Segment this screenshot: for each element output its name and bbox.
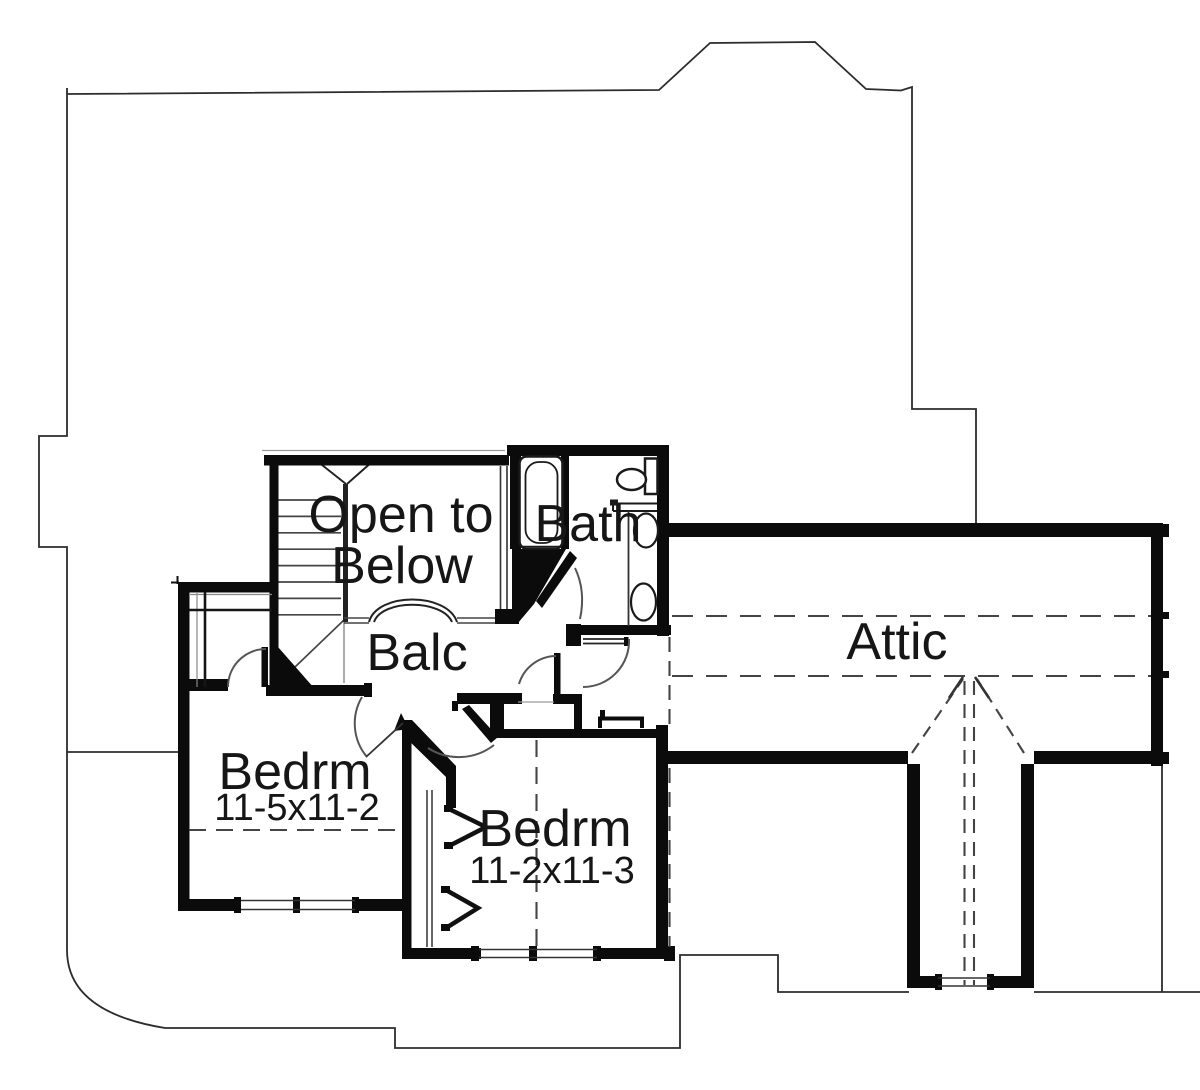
svg-text:Below: Below — [331, 537, 473, 595]
svg-text:Bath: Bath — [535, 495, 642, 553]
svg-text:11-5x11-2: 11-5x11-2 — [214, 787, 379, 829]
svg-text:Balc: Balc — [366, 624, 467, 682]
svg-text:11-2x11-3: 11-2x11-3 — [469, 850, 634, 892]
svg-text:Attic: Attic — [846, 613, 947, 671]
svg-text:Open to: Open to — [308, 486, 493, 544]
